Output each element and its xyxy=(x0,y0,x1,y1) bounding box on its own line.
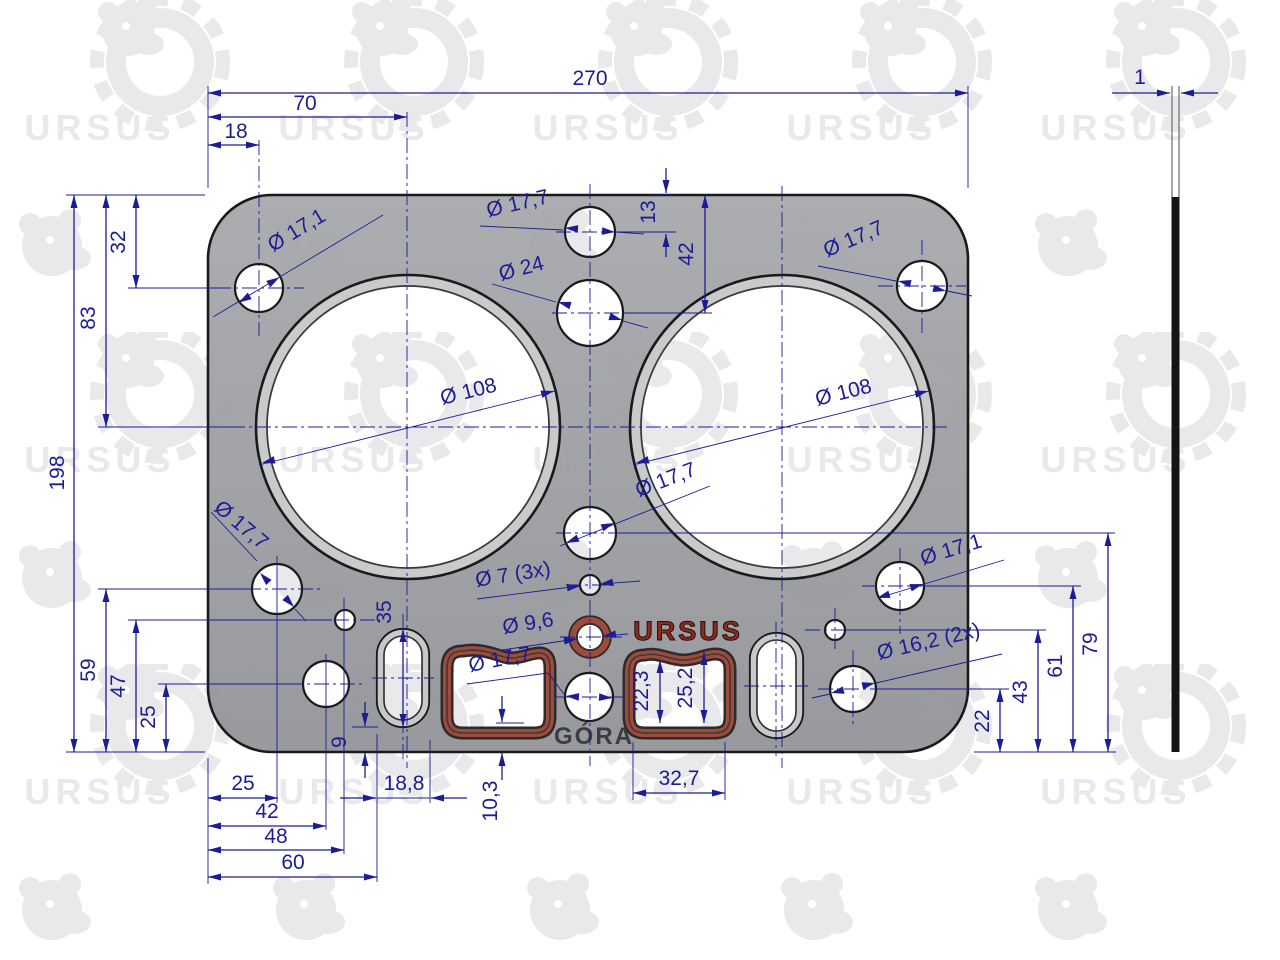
dim-thickness: 1 xyxy=(1134,66,1146,89)
dim-top-42: 42 xyxy=(675,242,698,265)
dim-slot-height-35: 35 xyxy=(373,600,396,623)
dim-slot-width: 18,8 xyxy=(384,772,425,795)
dim-height-32: 32 xyxy=(107,230,130,253)
dim-passage-height-22-3: 22,3 xyxy=(630,671,653,712)
dim-hole-offset-18: 18 xyxy=(224,120,247,143)
gasket-front-view: URSUS GÓRA xyxy=(208,195,968,752)
dim-right-22: 22 xyxy=(971,709,994,732)
dim-passage-bottom-10-3: 10,3 xyxy=(479,781,502,822)
dim-height-47: 47 xyxy=(107,674,130,697)
dim-bottom-42: 42 xyxy=(255,800,278,823)
dim-slot-bottom-9: 9 xyxy=(328,736,351,748)
dim-overall-width: 270 xyxy=(572,67,607,90)
dim-height-25: 25 xyxy=(137,705,160,728)
embossed-brand-text: URSUS xyxy=(633,616,743,646)
dim-bottom-60: 60 xyxy=(281,851,304,874)
dim-passage-height-25-2: 25,2 xyxy=(674,668,697,709)
dim-top-13: 13 xyxy=(637,200,660,223)
dim-height-59: 59 xyxy=(77,658,100,681)
dim-right-43: 43 xyxy=(1009,680,1032,703)
dim-passage-width-32-7: 32,7 xyxy=(659,767,700,790)
dim-height-83: 83 xyxy=(77,306,100,329)
gora-stamp-text: GÓRA xyxy=(554,722,634,750)
dim-right-61: 61 xyxy=(1044,654,1067,677)
gasket-technical-drawing: URSUS xyxy=(0,0,1280,960)
dim-overall-height: 198 xyxy=(46,455,69,490)
dim-bore-center-offset: 70 xyxy=(293,92,316,115)
dim-bottom-25: 25 xyxy=(231,772,254,795)
dim-right-79: 79 xyxy=(1079,632,1102,655)
dim-bottom-48: 48 xyxy=(264,825,287,848)
gasket-drawing-page: URSUS xyxy=(0,0,1280,960)
gasket-body xyxy=(208,195,968,752)
gasket-edge-profile xyxy=(1172,197,1180,752)
